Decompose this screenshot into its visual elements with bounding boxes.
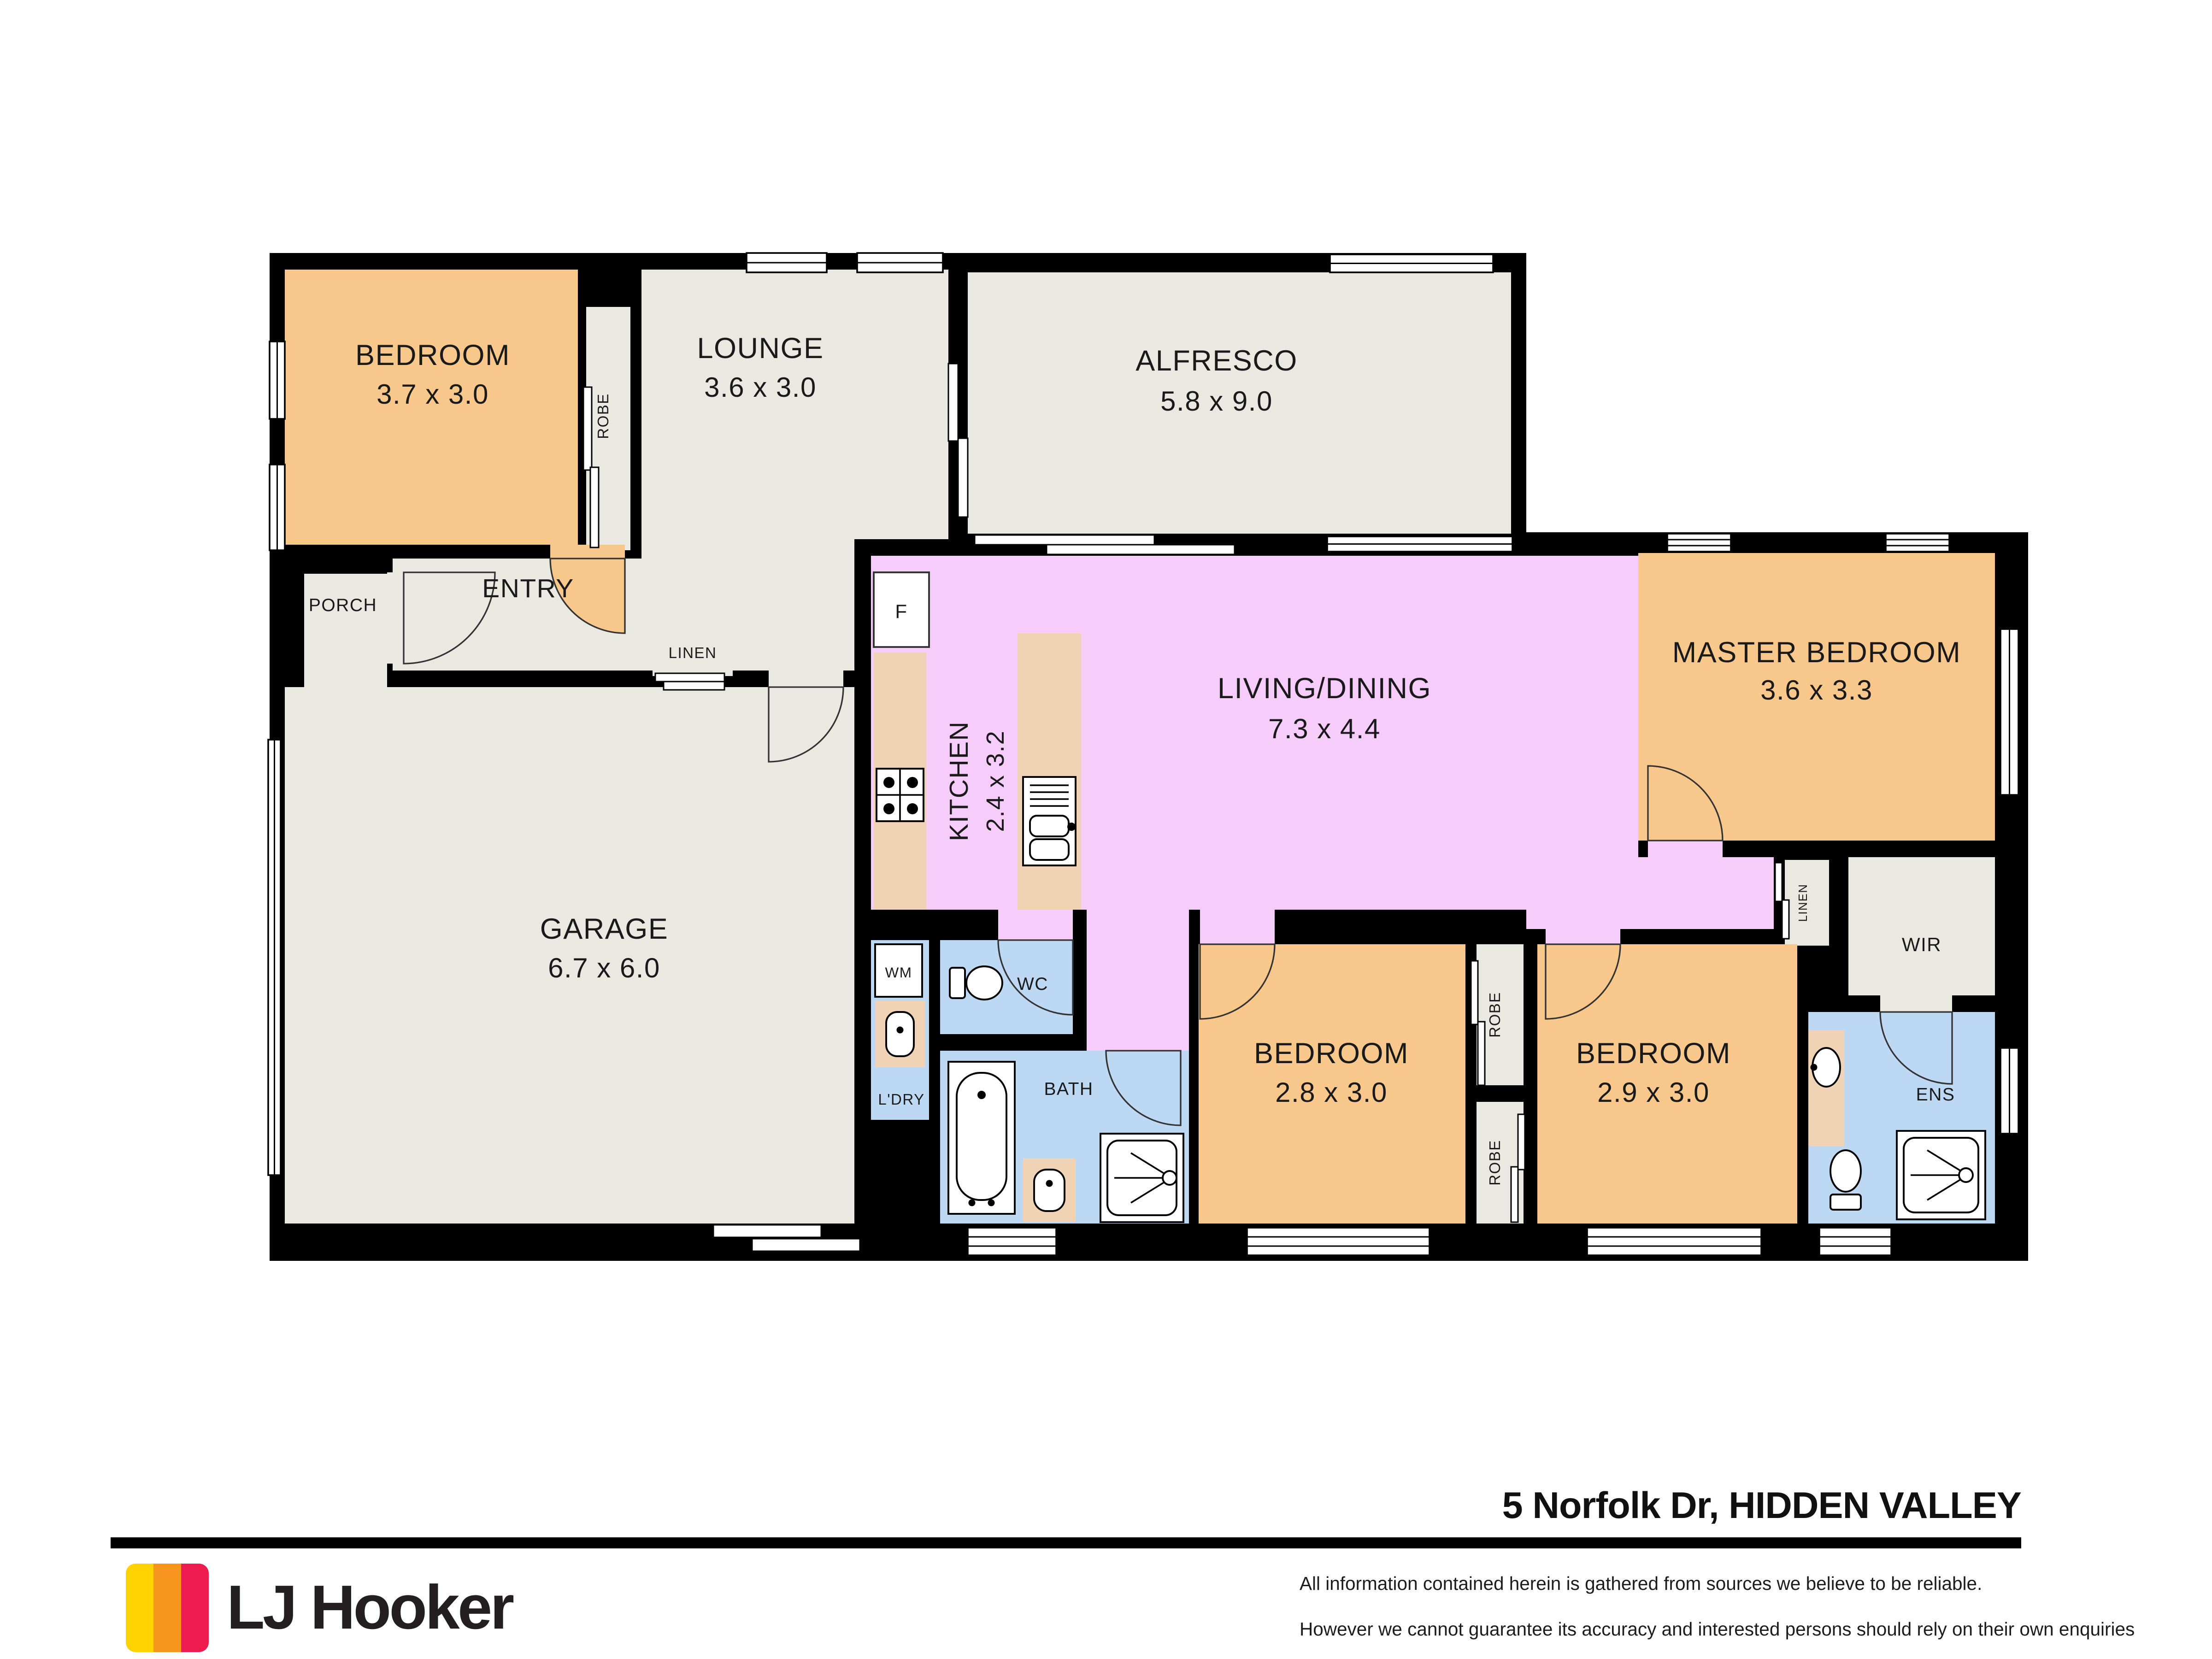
kitchen-dim: 2.4 x 3.2 <box>982 730 1009 832</box>
slider-alfresco-living-1 <box>975 535 1154 545</box>
slider-robe-29-1 <box>1518 1114 1525 1170</box>
wc-label: WC <box>1017 974 1048 994</box>
alfresco-label: ALFRESCO <box>1135 345 1298 377</box>
kitchen-sink-icon <box>1030 816 1069 836</box>
laundry-tub-icon <box>897 1027 904 1034</box>
linen-master-label: LINEN <box>1797 884 1810 922</box>
kitchen-sink-icon <box>1030 839 1069 860</box>
fridge-label: F <box>895 600 907 622</box>
floorplan-drawing: BEDROOM3.7 x 3.0LOUNGE3.6 x 3.0ALFRESCO5… <box>0 0 2212 1659</box>
hall-bed-floor <box>1087 910 1189 1051</box>
bath-sink-icon <box>1034 1170 1065 1211</box>
ens-vanity-icon <box>1811 1064 1818 1071</box>
entry-label: ENTRY <box>482 574 574 603</box>
slider-garage-bottom-2 <box>752 1239 860 1251</box>
bedroom-tl-label: BEDROOM <box>355 339 510 371</box>
logo-stripe-red <box>181 1564 209 1652</box>
slider-linen-entry-2 <box>664 682 724 690</box>
bedroom-29-label: BEDROOM <box>1576 1037 1731 1070</box>
garage-door-gap <box>769 671 843 687</box>
property-address: 5 Norfolk Dr, HIDDEN VALLEY <box>1502 1485 2021 1528</box>
kitchen-island <box>1018 633 1081 910</box>
bathtub-icon <box>988 1200 995 1206</box>
slider-alfresco-living-2 <box>1047 545 1235 554</box>
bedroom-tl-door-gap <box>550 545 625 559</box>
robe-tl-label: ROBE <box>594 393 612 439</box>
wir-label: WIR <box>1902 934 1941 955</box>
master-bedroom-dim: 3.6 x 3.3 <box>1760 675 1873 706</box>
bath-shower-icon <box>1163 1171 1177 1185</box>
kitchen-label: KITCHEN <box>944 721 974 841</box>
bedroom-28-door-gap <box>1200 910 1275 944</box>
footer-divider-bar <box>111 1537 2021 1548</box>
ens-shower-icon <box>1959 1168 1973 1182</box>
slider-lounge-alfresco-2 <box>958 438 968 517</box>
lounge-label: LOUNGE <box>697 332 824 365</box>
ens-toilet-icon <box>1830 1150 1861 1192</box>
disclaimer-line-2: However we cannot guarantee its accuracy… <box>1300 1619 2135 1640</box>
disclaimer-line-1: All information contained herein is gath… <box>1300 1573 1982 1594</box>
ens-toilet-icon <box>1830 1194 1861 1210</box>
window-master-top-2 <box>1886 534 1949 552</box>
wm-label: WM <box>885 964 912 981</box>
page: { "title": "Floor plan - 5 Norfolk Dr, H… <box>0 0 2212 1659</box>
slider-robe-tl-1 <box>583 387 592 470</box>
slider-robe-tl-2 <box>590 467 599 547</box>
bathtub-icon <box>969 1200 976 1206</box>
front-door-gap <box>387 572 404 664</box>
garage-label: GARAGE <box>540 913 669 945</box>
robe-28-label: ROBE <box>1486 992 1503 1038</box>
bedroom-28-dim: 2.8 x 3.0 <box>1275 1077 1388 1108</box>
slider-robe-28-2 <box>1478 1022 1485 1085</box>
porch-label: PORCH <box>309 595 377 615</box>
window-bedroom-28-bottom <box>1247 1228 1430 1255</box>
lj-hooker-logo-stripes-icon <box>126 1564 209 1652</box>
laundry-label: L'DRY <box>878 1091 924 1108</box>
living-dining-label: LIVING/DINING <box>1218 672 1431 705</box>
bedroom-28-label: BEDROOM <box>1254 1037 1409 1070</box>
window-bath-bottom <box>968 1228 1056 1255</box>
master-door-gap <box>1648 841 1723 857</box>
slider-lounge-alfresco-1 <box>948 364 958 441</box>
bedroom-29-dim: 2.9 x 3.0 <box>1597 1077 1710 1108</box>
stove-icon <box>907 777 918 788</box>
stove-icon <box>883 777 894 788</box>
window-master-top-1 <box>1667 534 1731 552</box>
slider-linen-entry-1 <box>655 673 724 682</box>
living-dining-floor-2 <box>1526 556 1638 929</box>
robe-29-label: ROBE <box>1486 1140 1503 1186</box>
window-ens-bottom <box>1819 1228 1891 1255</box>
wc-door-gap <box>998 910 1073 940</box>
logo-stripe-yellow <box>126 1564 153 1652</box>
logo-stripe-orange <box>153 1564 181 1652</box>
stove-icon <box>883 803 894 814</box>
porch-floor <box>304 574 387 687</box>
slider-robe-29-2 <box>1511 1167 1518 1222</box>
bedroom-tl-dim: 3.7 x 3.0 <box>377 379 489 410</box>
wir-floor <box>1848 857 1995 995</box>
entry-floor-3 <box>744 624 854 671</box>
hall-master-floor <box>1638 857 1774 929</box>
bath-sink-icon <box>1046 1180 1053 1187</box>
living-dining-dim: 7.3 x 4.4 <box>1268 713 1381 744</box>
bathtub-icon <box>977 1091 986 1099</box>
laundry-tub-icon <box>886 1012 914 1056</box>
bedroom-29-door-gap <box>1546 929 1620 944</box>
wir-ens-door-gap <box>1880 995 1952 1012</box>
linen-entry-label: LINEN <box>669 644 717 661</box>
ens-label: ENS <box>1916 1085 1955 1105</box>
kitchen-sink-icon <box>1067 823 1076 831</box>
lj-hooker-logo-text: LJ Hooker <box>227 1564 512 1652</box>
floorplan-page: BEDROOM3.7 x 3.0LOUNGE3.6 x 3.0ALFRESCO5… <box>0 0 2212 1659</box>
master-bedroom-label: MASTER BEDROOM <box>1672 636 1961 669</box>
window-bedroom-29-bottom <box>1587 1228 1761 1255</box>
bath-label: BATH <box>1044 1079 1093 1099</box>
slider-linen-master-1 <box>1775 863 1782 901</box>
wc-toilet-icon <box>966 966 1002 1000</box>
slider-linen-master-2 <box>1782 900 1789 939</box>
lounge-floor <box>641 270 948 539</box>
slider-robe-28-1 <box>1471 961 1478 1024</box>
alfresco-dim: 5.8 x 9.0 <box>1160 386 1273 417</box>
lj-hooker-logo: LJ Hooker <box>126 1564 512 1652</box>
stove-icon <box>907 803 918 814</box>
slider-garage-bottom-1 <box>713 1225 821 1237</box>
lounge-dim: 3.6 x 3.0 <box>704 372 817 403</box>
wc-toilet-icon <box>950 968 965 998</box>
garage-dim: 6.7 x 6.0 <box>548 953 660 983</box>
